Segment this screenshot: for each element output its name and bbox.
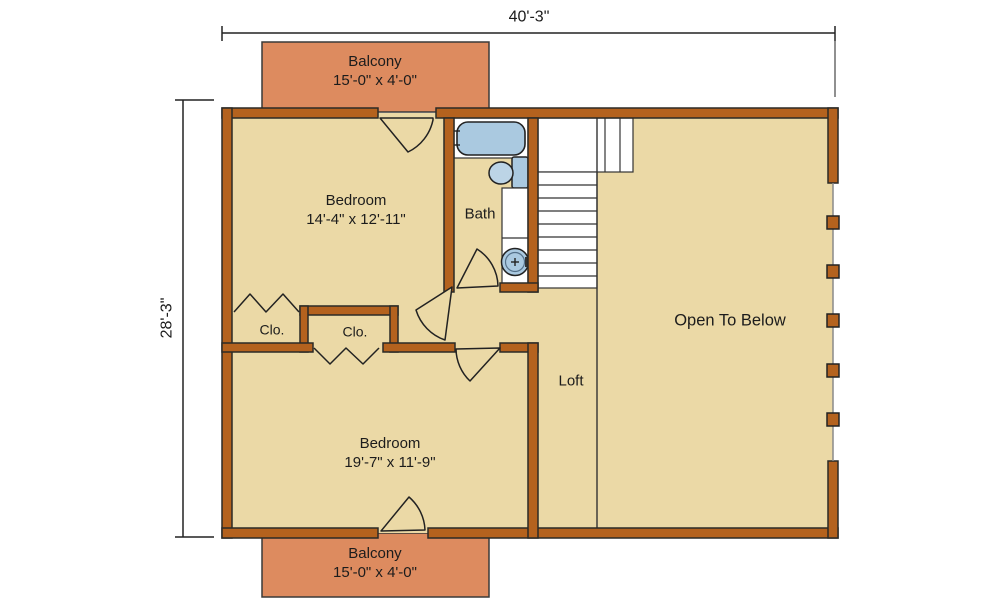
railing-post [827, 314, 839, 327]
wall-right-lower [828, 461, 838, 538]
wall-right-upper [828, 108, 838, 183]
railing-post [827, 216, 839, 229]
wall-top-left [222, 108, 378, 118]
bath-label: Bath [465, 205, 496, 224]
railing-post [827, 364, 839, 377]
overall-width-dimension: 40'-3" [509, 8, 550, 27]
railing-post [827, 413, 839, 426]
balcony-bottom-name: Balcony [333, 544, 417, 563]
vanity-sink-icon [502, 188, 531, 288]
balcony-top-size: 15'-0" x 4'-0" [333, 71, 417, 90]
bedroom-upper-name: Bedroom [306, 191, 406, 210]
wall-bedroom-bath [444, 118, 454, 292]
wall-bedroom2-right [528, 343, 538, 538]
bedroom-lower-size: 19'-7" x 11'-9" [344, 453, 435, 472]
bathtub-icon [454, 118, 528, 158]
open-to-below-label: Open To Below [674, 312, 786, 331]
closet-right-label: Clo. [343, 323, 368, 342]
balcony-bottom-size: 15'-0" x 4'-0" [333, 563, 417, 582]
wall-top-right [436, 108, 838, 118]
bedroom-upper-size: 14'-4" x 12'-11" [306, 210, 406, 229]
bedroom-lower-name: Bedroom [344, 434, 435, 453]
floor-plan: 40'-3" 28'-3" Balcony 15'-0" x 4'-0" Bed… [0, 0, 1000, 607]
wall-closet-top [300, 306, 398, 315]
bedroom-upper-label: Bedroom 14'-4" x 12'-11" [306, 191, 406, 229]
wall-bath-bottom [500, 283, 538, 292]
wall-mid-center [383, 343, 455, 352]
wall-mid-left [222, 343, 313, 352]
balcony-bottom-label: Balcony 15'-0" x 4'-0" [333, 544, 417, 582]
balcony-top-label: Balcony 15'-0" x 4'-0" [333, 52, 417, 90]
wall-bath-stairs [528, 118, 538, 292]
floor-plan-drawing [0, 0, 1000, 607]
railing-post [827, 265, 839, 278]
closet-left-label: Clo. [260, 321, 285, 340]
wall-bottom-left [222, 528, 378, 538]
overall-height-dimension: 28'-3" [158, 298, 177, 339]
balcony-top-name: Balcony [333, 52, 417, 71]
railing [827, 183, 839, 461]
loft-label: Loft [558, 372, 583, 391]
bedroom-lower-label: Bedroom 19'-7" x 11'-9" [344, 434, 435, 472]
wall-bottom-right [428, 528, 838, 538]
wall-left [222, 108, 232, 538]
